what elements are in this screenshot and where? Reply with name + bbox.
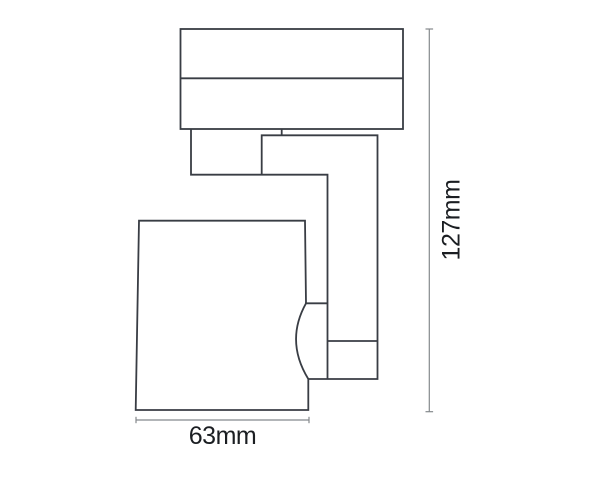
spotlight-line-drawing: [0, 0, 600, 486]
technical-drawing-canvas: 63mm 127mm: [0, 0, 600, 486]
height-dimension-line: [426, 29, 434, 412]
arm-outline: [262, 135, 378, 379]
height-dimension-label: 127mm: [440, 180, 465, 261]
yoke-outline: [191, 129, 328, 379]
width-dimension-label: 63mm: [136, 424, 309, 449]
lamp-head-outline: [136, 221, 309, 410]
